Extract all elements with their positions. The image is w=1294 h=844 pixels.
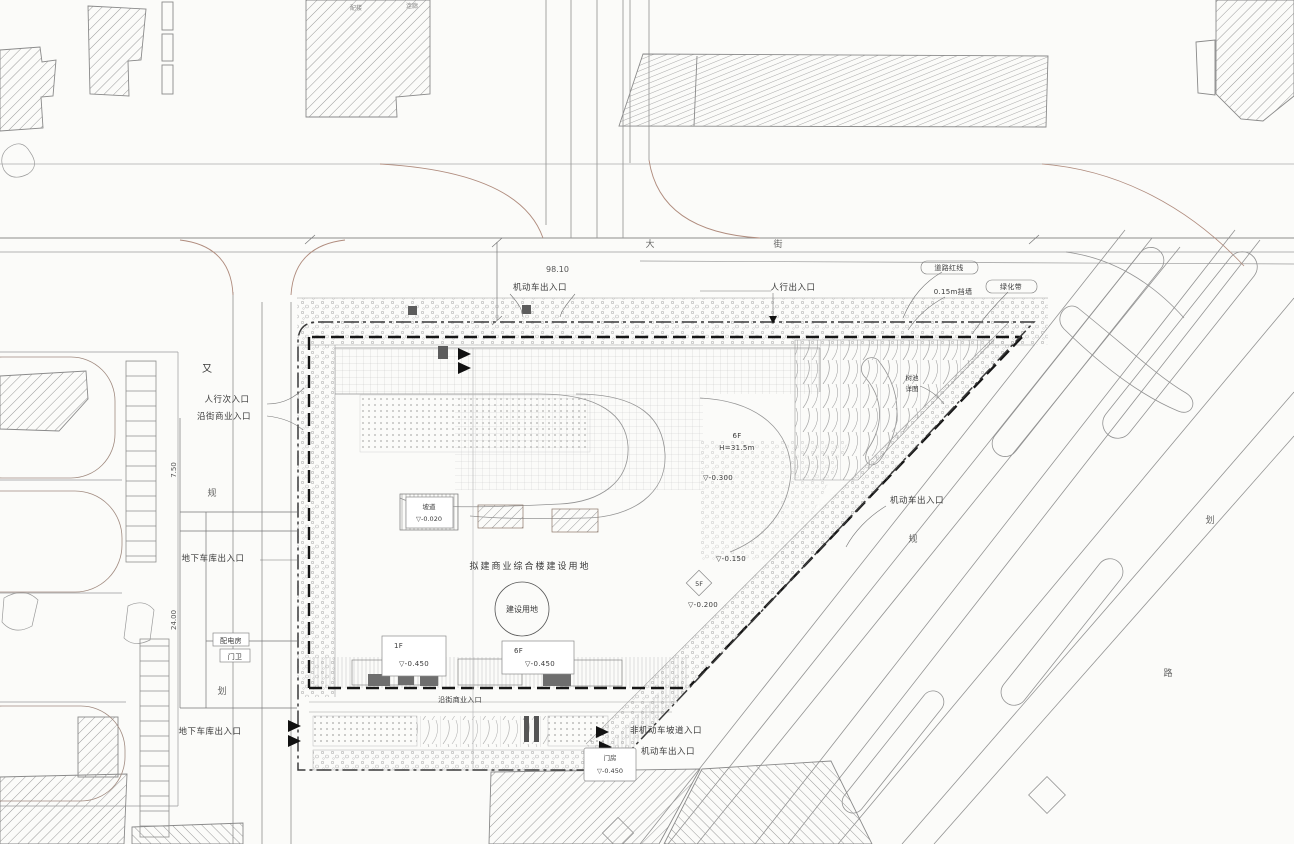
entrance-label-right-vehicle: 机动车出入口 [890,495,944,506]
note-wall: 0.15m挡墙 [934,287,973,296]
parking-stall-row [140,639,169,837]
site-plan-drawing: 机动车出入口 人行出入口 道路红线 0.15m挡墙 绿化带 树池 详图 又 人行… [0,0,1294,844]
elev-1f-value: ▽-0.450 [399,660,429,668]
utility-box-text: 配电房 [220,636,242,645]
note-tree-pool-detail: 详图 [906,384,919,393]
gate-label-1: 门房 [604,753,617,762]
road-name-north-2: 街 [773,238,782,250]
entrance-label-top-vehicle: 机动车出入口 [513,282,567,293]
road-name-se-2: 划 [1205,514,1214,526]
entrance-label-left-shops: 沿街商业入口 [197,411,251,422]
dim-top-width: 98.10 [546,265,569,274]
crosswalk [552,509,598,532]
median-island [838,686,949,817]
left-benchmark: 又 [202,363,212,375]
planter [438,346,448,359]
spot-elevation-b: ▽-0.150 [716,555,746,563]
entrance-label-top-pedestrian: 人行出入口 [770,282,815,293]
site-plan-svg: 机动车出入口 人行出入口 道路红线 0.15m挡墙 绿化带 树池 详图 又 人行… [0,0,1294,844]
site-title: 拟建商业综合楼建设用地 [469,560,590,572]
planting-strip [313,750,605,770]
entrance-label-bottomleft-garage: 地下车库出入口 [178,726,241,737]
planter [522,305,531,314]
paved-block [313,716,417,746]
parking-stall-row [126,361,156,562]
road-name-west-1: 规 [207,488,216,499]
ramp-label-box [406,497,453,528]
elev-1f-floor: 1F [394,642,403,650]
paved-walkway [335,349,820,394]
building-floors: 6F [732,432,741,440]
elevation-box-1f [382,636,446,676]
note-tree-pool: 树池 [906,373,920,382]
road-name-north-1: 大 [645,238,654,250]
planter [408,306,417,315]
ramp-island [1060,306,1193,412]
road-name-se-1: 规 [908,534,917,545]
crosswalk [478,505,523,528]
entrance-label-bottom-vehicle: 机动车出入口 [641,746,695,757]
road-name-se-3: 路 [1163,667,1172,679]
entrance-label-left-pedestrian: 人行次入口 [204,394,249,405]
site-stamp-text: 建设用地 [506,604,538,614]
paved-plaza [455,394,703,490]
median-island [996,553,1128,710]
entrance-label-left-garage: 地下车库出入口 [181,553,244,564]
top-edge-note-1: 配楼 [350,4,362,12]
planting-band-west [297,345,335,697]
dim-left-upper: 7.50 [170,462,178,478]
median-island [987,242,1169,462]
top-edge-note-2: 连廊 [406,2,418,10]
note-red-line: 道路红线 [934,263,963,272]
road-name-west-2: 划 [217,685,226,697]
diamond-marker-text: 5F [695,580,703,588]
site-interior [297,298,1048,770]
entrance-arrow [288,735,301,747]
elev-6f-value: ▽-0.450 [525,660,555,668]
ramp-label-1: 坡道 [423,502,437,511]
spot-elevation-c: ▽-0.200 [688,601,718,609]
elev-6f-floor: 6F [514,647,523,655]
note-green-belt: 绿化带 [1000,282,1022,291]
entrance-label-bottom-nonmotor: 非机动车坡道入口 [630,725,702,736]
ramp-label-2: ▽-0.020 [416,515,442,523]
elevation-box-6f [502,641,574,674]
gate-house-box [584,748,636,781]
building-height: H=31.5m [719,444,755,452]
guard-box-text: 门卫 [228,652,243,661]
entrance-arrow [288,720,301,732]
shops-strip [309,657,689,688]
entrance-label-bottom-shops: 沿街商业入口 [438,695,482,704]
gate-label-2: ▽-0.450 [597,767,623,775]
spot-elevation-a: ▽-0.300 [703,474,733,482]
dim-left-lower: 24.00 [170,610,178,630]
